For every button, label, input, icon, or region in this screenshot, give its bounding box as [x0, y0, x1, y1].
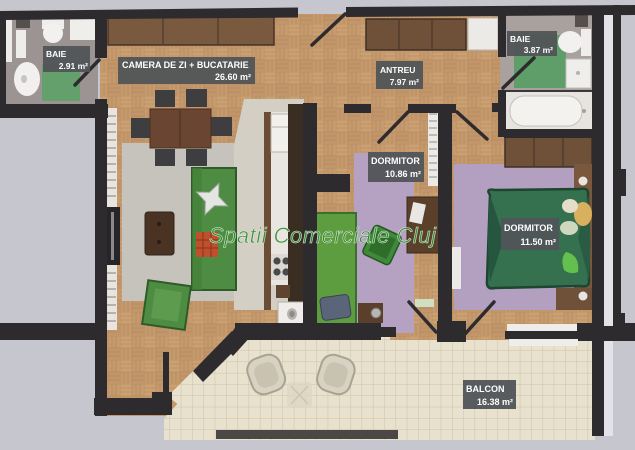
svg-text:16.38 m²: 16.38 m²	[477, 397, 513, 407]
svg-text:BAIE: BAIE	[510, 34, 531, 44]
svg-text:DORMITOR: DORMITOR	[504, 223, 553, 233]
svg-text:26.60 m²: 26.60 m²	[215, 72, 251, 82]
svg-text:DORMITOR: DORMITOR	[371, 156, 420, 166]
svg-text:11.50 m²: 11.50 m²	[520, 237, 556, 247]
svg-text:BAIE: BAIE	[46, 49, 67, 59]
svg-text:CAMERA DE ZI + BUCATARIE: CAMERA DE ZI + BUCATARIE	[122, 60, 249, 70]
svg-text:3.87 m²: 3.87 m²	[524, 45, 553, 55]
svg-text:ANTREU: ANTREU	[380, 65, 415, 75]
svg-text:7.97 m²: 7.97 m²	[390, 77, 419, 87]
svg-text:10.86 m²: 10.86 m²	[385, 169, 421, 179]
svg-text:BALCON: BALCON	[466, 384, 505, 394]
svg-text:2.91 m²: 2.91 m²	[59, 61, 88, 71]
svg-text:Spatii Comerciale Cluj: Spatii Comerciale Cluj	[209, 223, 437, 248]
